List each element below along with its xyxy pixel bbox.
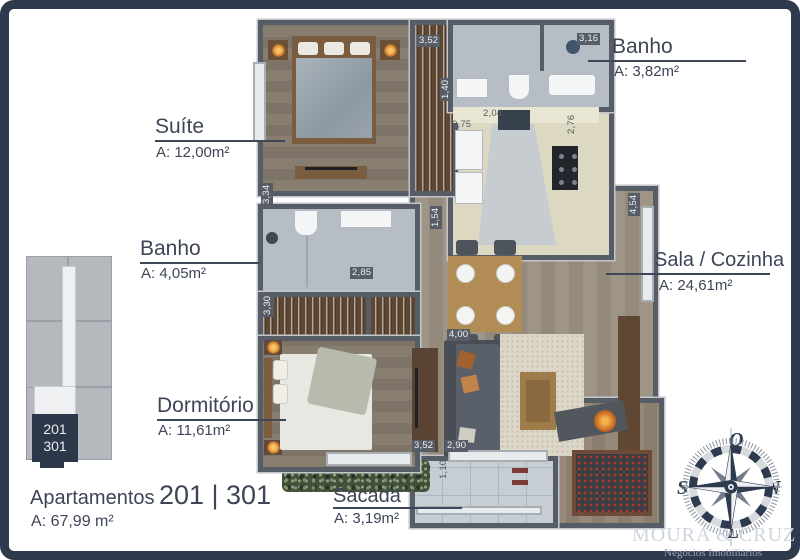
stove	[552, 146, 578, 190]
balcony-bench	[512, 480, 528, 485]
dimension-label: 1,54	[430, 206, 442, 229]
shower-tray	[548, 74, 596, 96]
toilet	[294, 210, 318, 236]
apartment-title-numbers: 201 | 301	[159, 480, 271, 510]
key-plan-unit-301: 301	[43, 438, 66, 456]
coffee-table-tray	[526, 380, 550, 422]
dinner-plate	[456, 306, 475, 325]
dimension-label: 4,54	[628, 193, 640, 216]
dining-chair	[494, 240, 516, 255]
leader-line	[157, 419, 286, 421]
vanity-sink	[456, 78, 488, 98]
nightstand-lamp-icon	[272, 44, 285, 57]
kitchen-sink	[498, 110, 530, 130]
dorm-bed-headboard	[264, 358, 272, 438]
label-suite-area: A: 12,00m²	[156, 145, 229, 160]
dorm-bed-throw	[307, 346, 378, 415]
suite-bed-blanket	[296, 58, 372, 138]
dimension-label: 0,75	[452, 120, 471, 130]
vanity-sink	[340, 210, 392, 228]
dinner-plate	[496, 306, 515, 325]
key-plan-unit-201: 201	[43, 421, 66, 439]
dimension-label: 3,52	[412, 440, 435, 452]
suite-tv	[305, 167, 357, 170]
label-dormitorio-title: Dormitório	[157, 395, 254, 416]
dining-chair	[456, 240, 478, 255]
leader-line	[140, 262, 260, 264]
grill-fire-icon	[594, 410, 616, 432]
living-window	[641, 206, 654, 302]
key-plan-unit-highlight: 201 301	[32, 414, 78, 462]
label-banho-suite-area: A: 3,82m²	[614, 64, 679, 79]
dimension-label: 2,90	[445, 440, 468, 452]
key-plan-lobby	[34, 386, 76, 416]
nightstand-lamp-icon	[267, 441, 280, 454]
sofa-pillow	[461, 375, 480, 394]
label-sala-cozinha-area: A: 24,61m²	[659, 278, 732, 293]
fire-table	[572, 450, 652, 516]
label-banho-social-area: A: 4,05m²	[141, 266, 206, 281]
leader-line	[606, 273, 770, 275]
label-suite-title: Suíte	[155, 116, 204, 137]
apartment-area: A: 67,99 m²	[31, 514, 114, 530]
suite-window	[253, 62, 266, 142]
dorm-window	[326, 452, 412, 466]
watermark-name: MOURA & CRUZ	[632, 524, 796, 547]
label-banho-social-title: Banho	[140, 238, 201, 259]
bed-pillow	[273, 384, 288, 404]
room-sacada-floor	[410, 456, 558, 528]
dimension-label: 2,04	[483, 109, 502, 119]
shower-head-icon	[266, 232, 278, 244]
label-banho-suite-title: Banho	[612, 36, 673, 57]
key-plan: 201 301	[20, 252, 116, 466]
bed-pillow	[273, 360, 288, 380]
bed-pillow	[350, 42, 370, 55]
bath-divider-wall	[540, 25, 544, 71]
bed-pillow	[298, 42, 318, 55]
label-sala-cozinha-title: Sala / Cozinha	[654, 250, 784, 270]
leader-line	[333, 507, 462, 509]
dimension-label: 2,85	[350, 267, 373, 279]
closet-divider-wall	[366, 292, 371, 336]
apartment-title: Apartamentos 201 | 301	[30, 480, 271, 511]
label-sacada-area: A: 3,19m²	[334, 511, 399, 526]
dinner-plate	[496, 264, 515, 283]
dimension-label: 4,00	[447, 329, 470, 341]
leader-line	[155, 140, 285, 142]
dimension-label: 1,10	[439, 460, 449, 479]
bed-pillow	[324, 42, 344, 55]
dorm-tv	[415, 368, 418, 428]
balcony-bench	[512, 468, 528, 473]
dimension-label: 2,76	[567, 115, 577, 134]
apartment-title-prefix: Apartamentos	[30, 487, 155, 509]
label-sacada-title: Sacada	[333, 486, 401, 506]
dinner-plate	[456, 264, 475, 283]
dimension-label: 3,52	[417, 35, 440, 47]
dimension-label: 1,40	[440, 78, 452, 101]
toilet	[508, 74, 530, 100]
fridge	[455, 130, 483, 170]
nightstand-lamp-icon	[267, 341, 280, 354]
label-dormitorio-area: A: 11,61m²	[158, 423, 230, 438]
dimension-label: 3,16	[577, 33, 600, 45]
balcony-door	[448, 450, 548, 462]
room-banho-social-floor	[258, 204, 420, 302]
watermark-tagline: Negócios Imobiliários	[664, 547, 762, 559]
leader-line	[588, 60, 746, 62]
dimension-label: 3,30	[262, 294, 274, 317]
nightstand-lamp-icon	[384, 44, 397, 57]
dimension-label: 3,34	[261, 183, 273, 206]
tv-console-living	[618, 316, 640, 452]
key-plan-unit-notch	[40, 462, 64, 468]
kitchen-appliance	[455, 172, 483, 204]
